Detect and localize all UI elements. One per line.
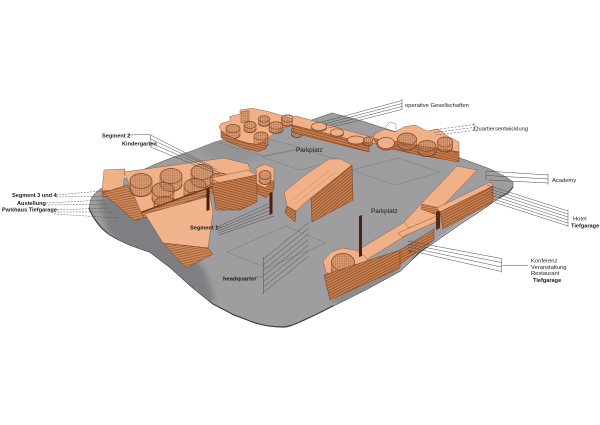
svg-text:Segment 3 und 4: Segment 3 und 4 [12, 193, 58, 199]
svg-text:Konferenz: Konferenz [531, 259, 558, 265]
svg-text:Parkplatz: Parkplatz [371, 208, 398, 215]
svg-text:Quartiersentwicklung: Quartiersentwicklung [474, 127, 528, 133]
svg-text:Parkhaus Tiefgarage: Parkhaus Tiefgarage [2, 208, 57, 214]
svg-text:Segment 2: Segment 2 [102, 134, 130, 140]
svg-text:Parkplatz: Parkplatz [296, 147, 323, 154]
svg-text:Tiefgarage: Tiefgarage [571, 224, 599, 230]
svg-text:Veranstaltung: Veranstaltung [531, 265, 566, 271]
svg-text:Hotel: Hotel [573, 217, 587, 223]
svg-text:Academy: Academy [552, 178, 576, 184]
svg-text:Segment 1: Segment 1 [190, 226, 218, 232]
svg-text:Restaurant: Restaurant [531, 271, 560, 277]
svg-text:headquarter: headquarter [223, 277, 257, 283]
svg-text:Austellung: Austellung [17, 201, 46, 207]
svg-text:operative Gesellschaften: operative Gesellschaften [405, 103, 469, 109]
svg-text:Kindergarten: Kindergarten [122, 142, 157, 148]
svg-text:Tiefgarage: Tiefgarage [533, 278, 561, 284]
